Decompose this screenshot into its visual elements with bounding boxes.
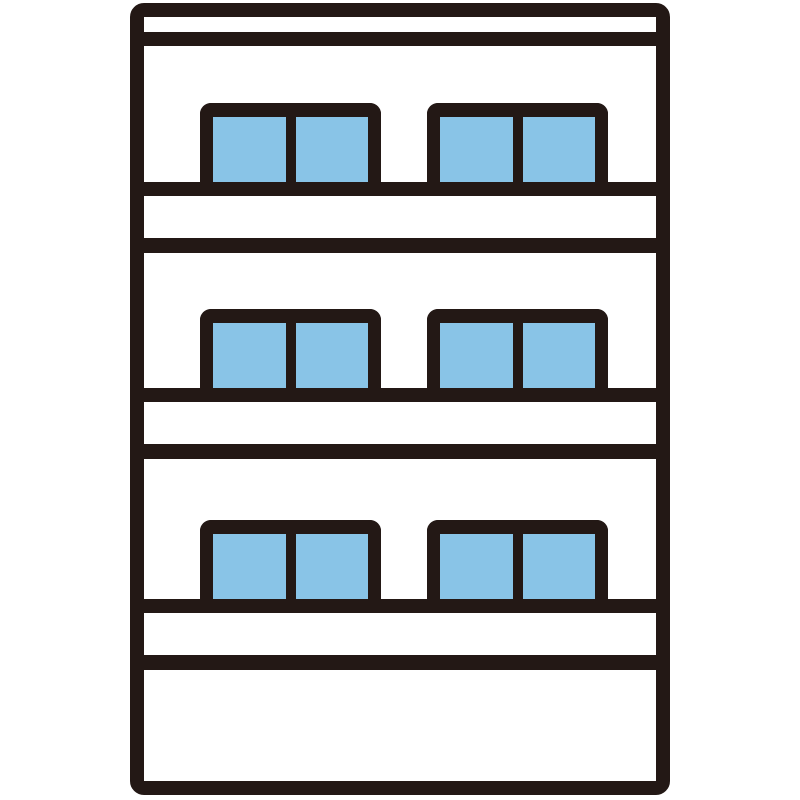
window-pane xyxy=(213,323,286,388)
window-group xyxy=(200,520,381,599)
floor xyxy=(144,103,656,253)
floor xyxy=(144,309,656,459)
window-pane xyxy=(523,534,596,599)
window-group xyxy=(427,309,608,388)
floor xyxy=(144,520,656,670)
windows-row xyxy=(144,309,656,388)
window-pane xyxy=(523,323,596,388)
window-mullion xyxy=(286,534,296,599)
window-pane xyxy=(440,534,513,599)
window-pane xyxy=(296,534,369,599)
floor-divider-band xyxy=(144,655,656,670)
floor-divider-band xyxy=(144,444,656,459)
window-pane xyxy=(213,117,286,182)
window-pane xyxy=(296,323,369,388)
windows-row xyxy=(144,103,656,182)
window-group xyxy=(200,309,381,388)
window-pane xyxy=(440,323,513,388)
window-mullion xyxy=(513,323,523,388)
window-group xyxy=(427,520,608,599)
window-mullion xyxy=(286,323,296,388)
window-pane xyxy=(296,117,369,182)
apartment-building xyxy=(130,3,670,795)
illustration-canvas xyxy=(0,0,800,800)
window-group xyxy=(200,103,381,182)
ground-floor-wall xyxy=(144,671,656,781)
window-pane xyxy=(440,117,513,182)
window-mullion xyxy=(513,117,523,182)
balcony-sill-band xyxy=(144,599,656,613)
floor-divider-band xyxy=(144,238,656,253)
window-group xyxy=(427,103,608,182)
window-pane xyxy=(523,117,596,182)
window-mullion xyxy=(513,534,523,599)
windows-row xyxy=(144,520,656,599)
balcony-sill-band xyxy=(144,182,656,196)
window-pane xyxy=(213,534,286,599)
roof-parapet-line xyxy=(144,32,656,46)
balcony-sill-band xyxy=(144,388,656,402)
window-mullion xyxy=(286,117,296,182)
